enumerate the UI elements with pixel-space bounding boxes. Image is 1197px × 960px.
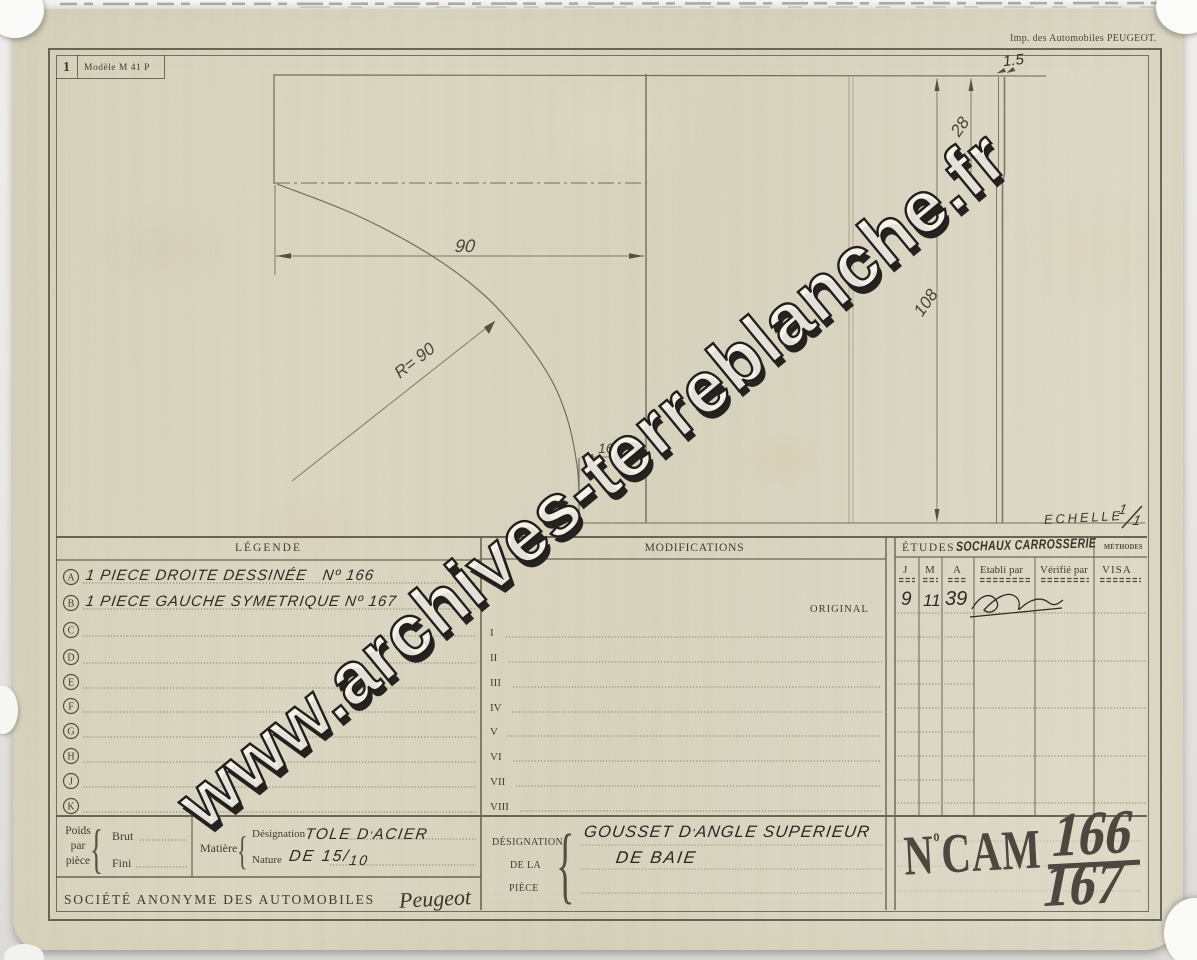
svg-text:VI: VI (490, 751, 502, 763)
svg-text:B: B (68, 599, 75, 610)
svg-text:F: F (68, 702, 74, 713)
svg-text:A: A (67, 573, 75, 584)
svg-text:III: III (490, 677, 501, 689)
svg-text:II: II (490, 652, 498, 664)
svg-text:D: D (67, 653, 74, 664)
svg-text:J: J (69, 777, 73, 788)
svg-text:V: V (490, 726, 498, 738)
svg-text:I: I (490, 627, 494, 639)
svg-text:C: C (68, 626, 75, 637)
svg-text:H: H (67, 752, 74, 763)
svg-text:G: G (67, 727, 74, 738)
svg-text:VIII: VIII (490, 801, 509, 813)
svg-text:VII: VII (490, 776, 506, 788)
svg-text:IV: IV (490, 702, 502, 714)
svg-text:E: E (68, 678, 74, 689)
svg-text:K: K (67, 802, 75, 813)
